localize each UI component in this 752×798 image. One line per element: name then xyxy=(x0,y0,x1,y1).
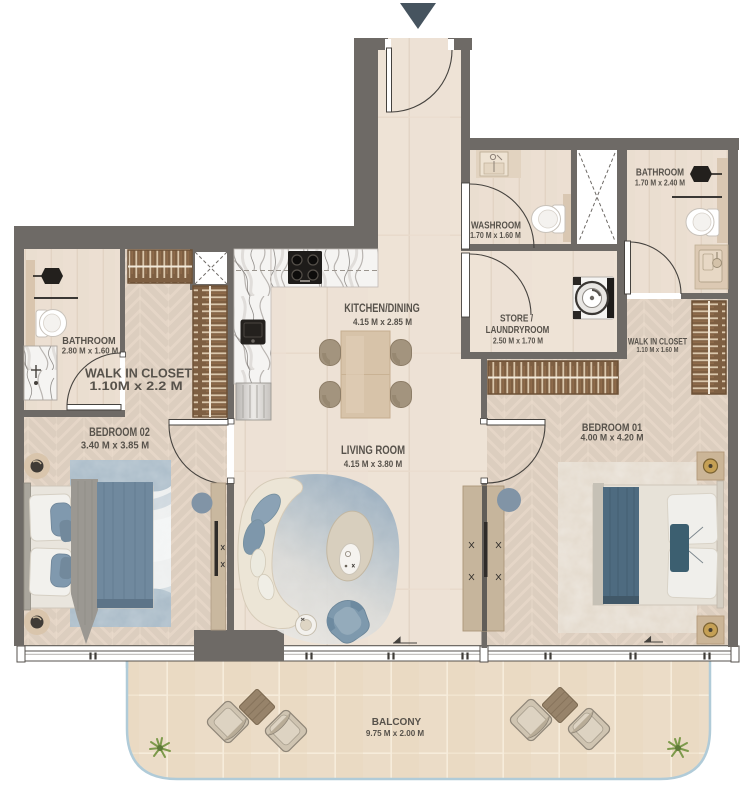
svg-text:LAUNDRYROOM: LAUNDRYROOM xyxy=(486,324,550,335)
svg-text:2.80 M x 1.60 M: 2.80 M x 1.60 M xyxy=(62,346,119,355)
svg-text:1.10 M x 1.60 M: 1.10 M x 1.60 M xyxy=(637,347,679,355)
svg-text:BEDROOM 02: BEDROOM 02 xyxy=(89,427,150,439)
svg-text:WALK IN CLOSET: WALK IN CLOSET xyxy=(628,337,687,347)
svg-text:BALCONY: BALCONY xyxy=(372,717,422,728)
svg-text:2.50 M x 1.70 M: 2.50 M x 1.70 M xyxy=(493,336,543,346)
svg-text:1.70 M x 1.60 M: 1.70 M x 1.60 M xyxy=(470,231,521,241)
svg-text:LIVING ROOM: LIVING ROOM xyxy=(341,444,405,457)
svg-text:BATHROOM: BATHROOM xyxy=(636,167,684,178)
svg-text:WALK IN CLOSET: WALK IN CLOSET xyxy=(85,367,192,381)
svg-text:1.70 M x 2.40 M: 1.70 M x 2.40 M xyxy=(635,178,685,188)
svg-text:1.10M x 2.2 M: 1.10M x 2.2 M xyxy=(89,380,182,393)
svg-text:3.40 M x 3.85 M: 3.40 M x 3.85 M xyxy=(81,440,149,452)
svg-text:4.15 M x 2.85 M: 4.15 M x 2.85 M xyxy=(353,317,412,327)
svg-text:WASHROOM: WASHROOM xyxy=(471,218,521,230)
svg-text:KITCHEN/DINING: KITCHEN/DINING xyxy=(344,303,420,315)
svg-text:STORE /: STORE / xyxy=(500,313,533,324)
svg-text:4.15 M x 3.80 M: 4.15 M x 3.80 M xyxy=(344,459,402,470)
svg-text:4.00 M x 4.20 M: 4.00 M x 4.20 M xyxy=(580,432,643,442)
svg-text:9.75 M x 2.00 M: 9.75 M x 2.00 M xyxy=(366,728,424,738)
